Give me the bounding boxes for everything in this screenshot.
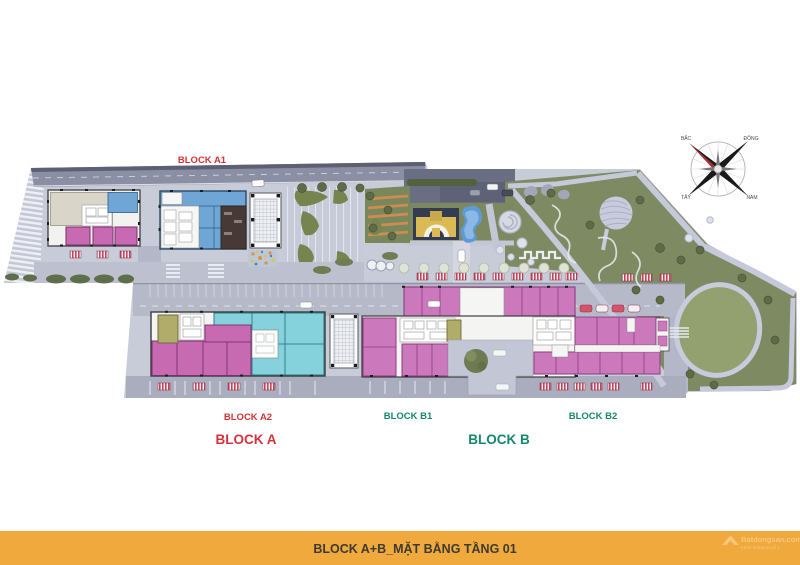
svg-text:Kênh thông tin số 1: Kênh thông tin số 1 [741,545,780,550]
svg-text:BLOCK B: BLOCK B [468,432,530,447]
svg-text:NAM: NAM [746,195,757,201]
svg-text:ĐÔNG: ĐÔNG [744,135,759,142]
svg-text:BLOCK A2: BLOCK A2 [224,412,272,423]
svg-text:BLOCK B2: BLOCK B2 [569,411,618,422]
svg-text:BLOCK A1: BLOCK A1 [178,155,227,166]
svg-text:Batdongsan.com: Batdongsan.com [741,535,800,544]
svg-text:BẮC: BẮC [681,134,692,142]
svg-text:BLOCK B1: BLOCK B1 [384,411,433,422]
svg-text:BLOCK A+B_MẶT BẰNG TẦNG 01: BLOCK A+B_MẶT BẰNG TẦNG 01 [313,541,516,556]
svg-text:TÂY: TÂY [681,194,691,201]
svg-text:BLOCK A: BLOCK A [216,432,277,447]
